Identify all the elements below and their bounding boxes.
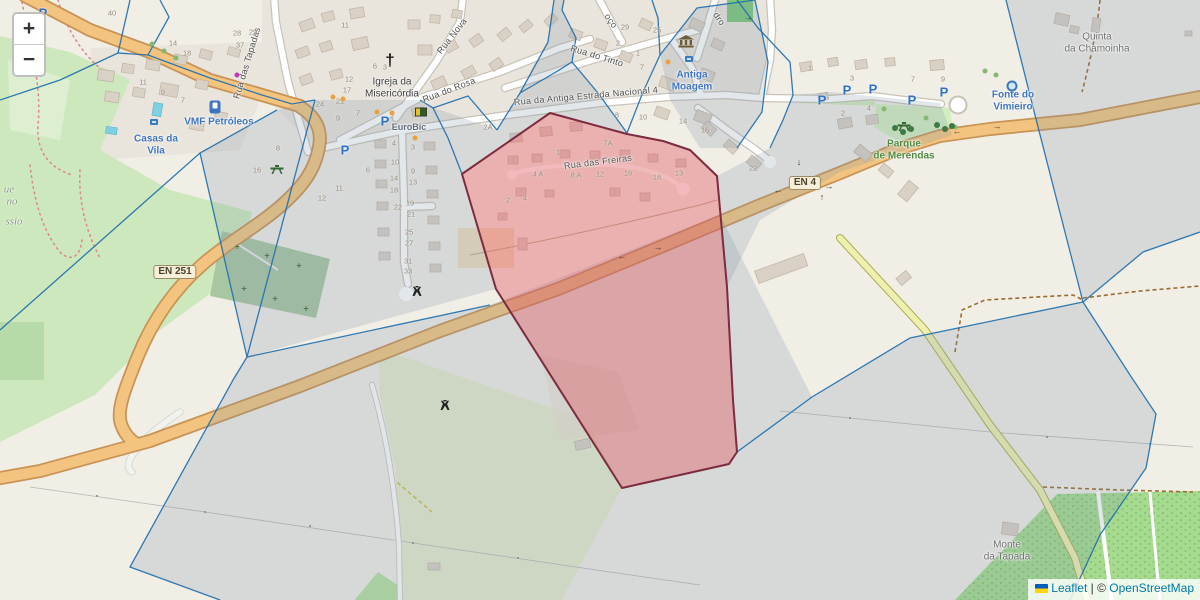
- attribution-bar: Leaflet | © OpenStreetMap: [1028, 579, 1200, 600]
- zoom-control: + −: [12, 12, 46, 77]
- zoom-in-button[interactable]: +: [14, 14, 44, 45]
- openstreetmap-link[interactable]: OpenStreetMap: [1109, 581, 1194, 595]
- map-viewport[interactable]: Rua das TapadasRua NovaRua do RosaRua do…: [0, 0, 1200, 600]
- ukraine-flag-icon: [1035, 584, 1048, 593]
- zoom-out-button[interactable]: −: [14, 45, 44, 75]
- attribution-separator: | ©: [1087, 581, 1109, 595]
- leaflet-link[interactable]: Leaflet: [1051, 581, 1087, 595]
- basemap-tiles: [0, 0, 1200, 600]
